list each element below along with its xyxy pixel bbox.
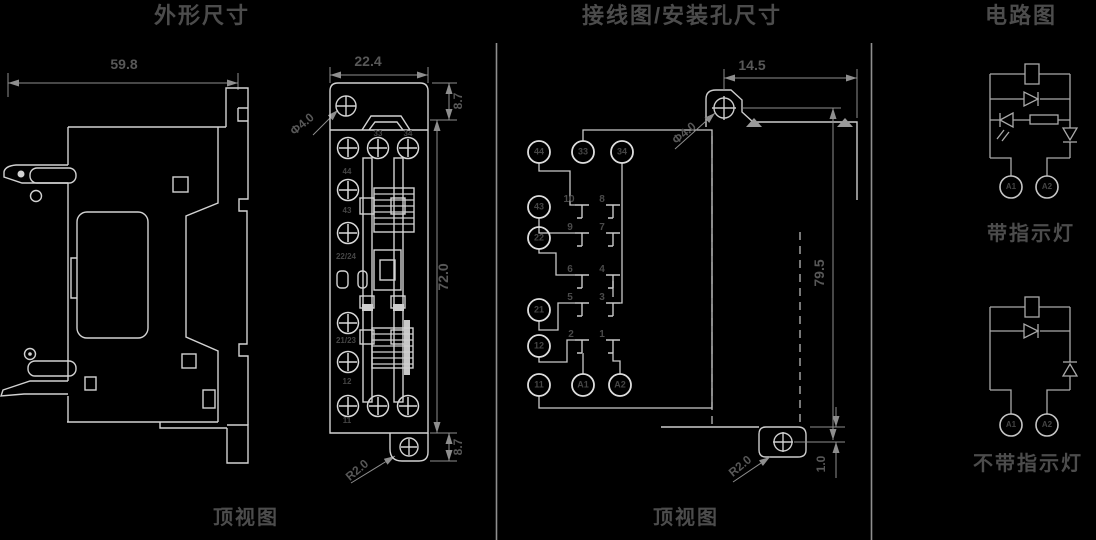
terminal-label-11: 11: [343, 417, 351, 425]
dim-hole-offset: 14.5: [738, 58, 765, 72]
circuit-without-led: [990, 297, 1077, 436]
wiring-diagram: [528, 130, 712, 408]
terminal-label-21-23: 21/23: [336, 337, 356, 345]
socket-terminal-circles: [528, 141, 633, 396]
pin-label-5: 5: [567, 293, 573, 303]
section-title-wiring: 接线图/安装孔尺寸: [582, 5, 782, 27]
pin-label-8: 8: [599, 195, 605, 205]
dim-overall-width: 59.8: [110, 57, 137, 71]
wiring-terminal-a1: A1: [577, 381, 589, 390]
drawing-linework: [0, 0, 1096, 540]
dim-bottom-tab: 8.7: [452, 439, 464, 456]
wiring-terminal-33: 33: [578, 148, 588, 157]
section-title-circuit: 电路图: [985, 5, 1057, 27]
relay-pin-symbols: [575, 205, 620, 353]
pin-label-1: 1: [599, 330, 605, 340]
wiring-terminal-21: 21: [534, 306, 544, 315]
caption-top-view-wiring: 顶视图: [653, 508, 719, 528]
technical-drawing-page: 外形尺寸 接线图/安装孔尺寸 电路图 顶视图 顶视图 带指示灯 不带指示灯 59…: [0, 0, 1096, 540]
caption-top-view-outline: 顶视图: [213, 508, 279, 528]
wiring-terminal-a2: A2: [614, 381, 626, 390]
wiring-terminal-22: 22: [534, 234, 544, 243]
terminal-label-34: 34: [404, 130, 413, 138]
side-view-drawing: [1, 73, 248, 463]
pin-label-3: 3: [599, 293, 605, 303]
terminal-label-22-24: 22/24: [336, 253, 356, 261]
circuit-with-led: [990, 64, 1077, 198]
circuit-led-terminal-a1: A1: [1006, 183, 1016, 191]
section-title-outline: 外形尺寸: [154, 5, 250, 27]
wiring-terminal-12: 12: [534, 342, 544, 351]
terminal-label-12: 12: [343, 378, 352, 386]
caption-without-indicator: 不带指示灯: [973, 454, 1083, 474]
pin-label-4: 4: [599, 265, 605, 275]
dim-edge-offset: 1.0: [815, 456, 827, 473]
dim-front-width: 22.4: [354, 54, 381, 68]
wiring-terminal-44: 44: [534, 148, 544, 157]
pin-label-10: 10: [563, 195, 574, 205]
wiring-terminal-34: 34: [617, 148, 627, 157]
pin-label-9: 9: [567, 223, 573, 233]
dim-body-height: 72.0: [436, 263, 450, 290]
pin-label-7: 7: [599, 223, 605, 233]
circuit-plain-terminal-a2: A2: [1042, 421, 1052, 429]
pin-label-2: 2: [568, 330, 574, 340]
terminal-label-44: 44: [343, 168, 352, 176]
terminal-label-43: 43: [343, 207, 352, 215]
circuit-led-terminal-a2: A2: [1042, 183, 1052, 191]
pin-label-6: 6: [567, 265, 573, 275]
caption-with-indicator: 带指示灯: [987, 224, 1075, 244]
wiring-terminal-43: 43: [534, 203, 544, 212]
terminal-label-33: 33: [374, 130, 383, 138]
circuit-plain-terminal-a1: A1: [1006, 421, 1016, 429]
dim-top-tab: 8.7: [452, 93, 464, 110]
dim-hole-spacing: 79.5: [812, 259, 826, 286]
wiring-terminal-11: 11: [534, 381, 544, 390]
